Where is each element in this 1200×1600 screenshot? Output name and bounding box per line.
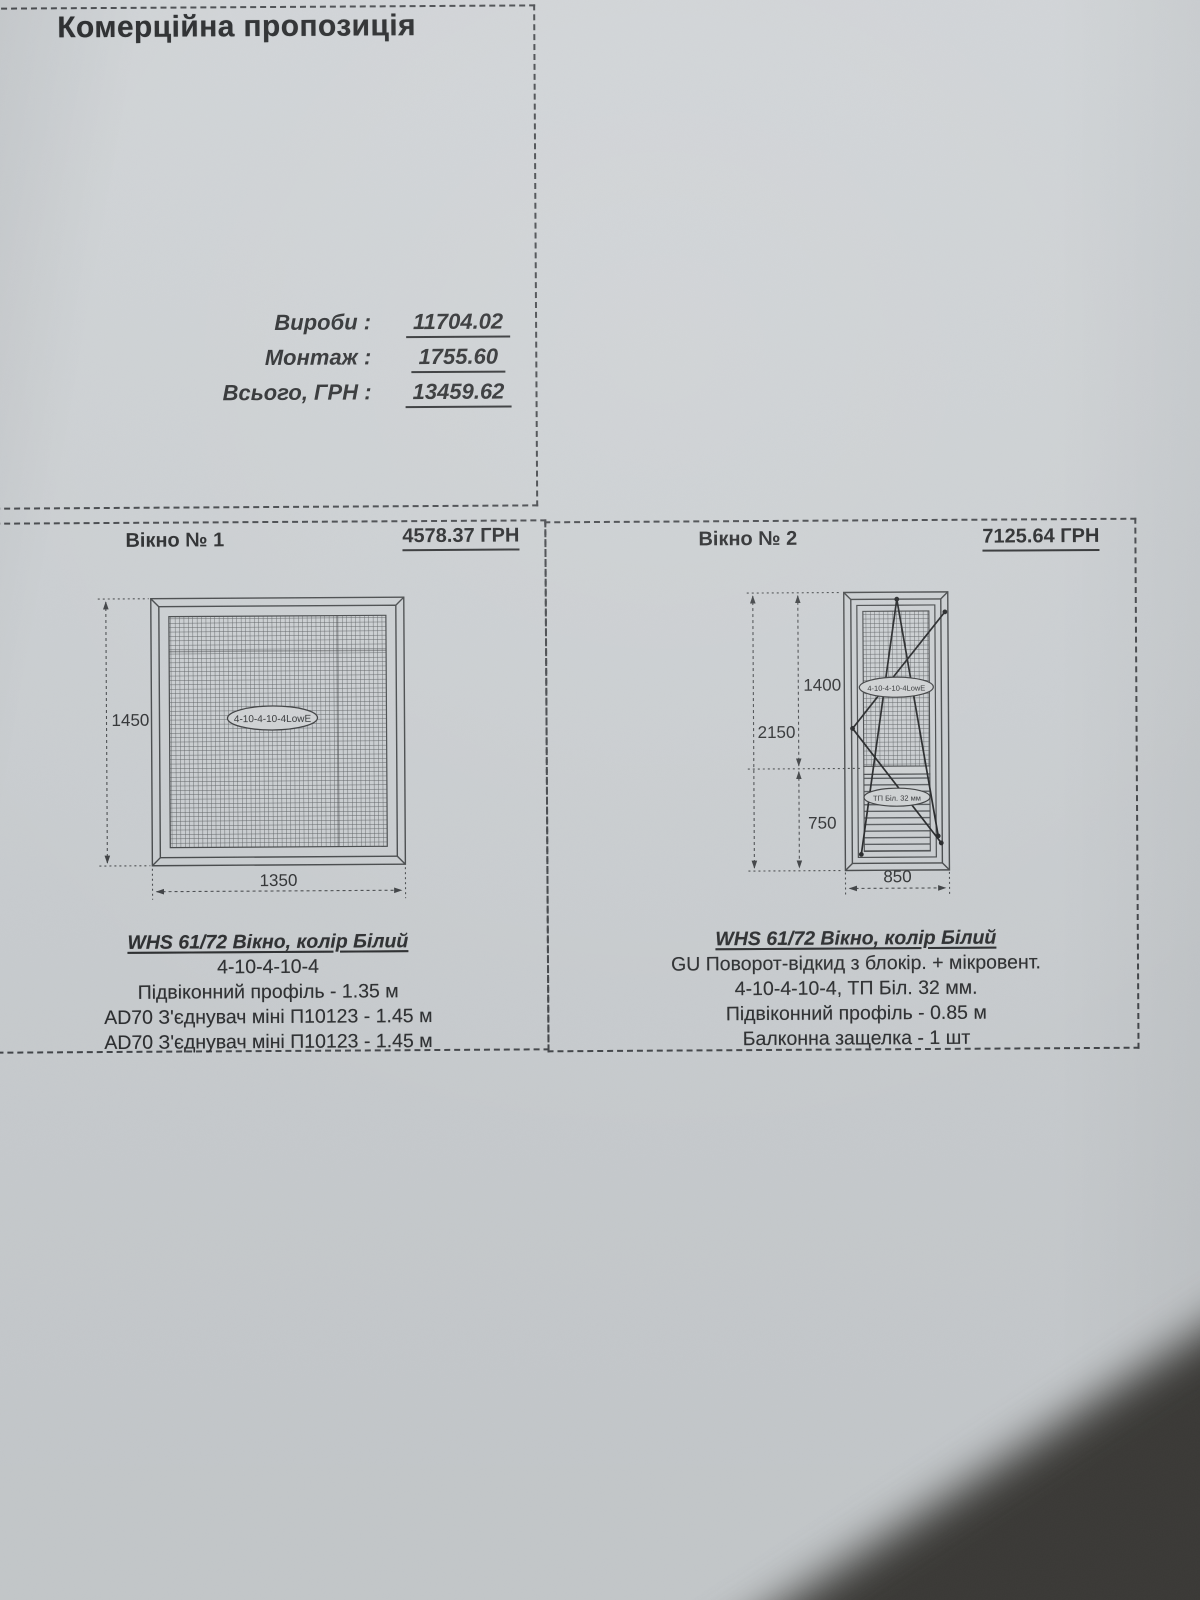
profile-spec-line: WHS 61/72 Вікно, колір Білий xyxy=(616,925,1096,953)
spec-line: 4-10-4-10-4 xyxy=(23,954,513,982)
spec-line: 4-10-4-10-4, ТП Біл. 32 мм. xyxy=(616,975,1096,1003)
photographed-document: Комерційна пропозиція Вироби : 11704.02 … xyxy=(0,0,1200,1600)
profile-spec-line: WHS 61/72 Вікно, колір Білий xyxy=(23,929,513,957)
paper-sheet: Комерційна пропозиція Вироби : 11704.02 … xyxy=(0,0,1200,1600)
spec-line: AD70 З'єднувач міні П10123 - 1.45 м xyxy=(23,1029,513,1057)
dimension-label-width: 1350 xyxy=(260,871,298,890)
window-2-panel-label: ТП Біл. 32 мм xyxy=(873,794,921,803)
window-1-glass-label: 4-10-4-10-4LowE xyxy=(234,714,312,725)
window-diagrams: 4-10-4-10-4LowE 1450 1350 xyxy=(0,0,1200,1600)
dimension-label-total-height: 2150 xyxy=(758,723,796,742)
spec-line: GU Поворот-відкид з блокір. + мікровент. xyxy=(616,950,1096,978)
window-1-description: WHS 61/72 Вікно, колір Білий 4-10-4-10-4… xyxy=(23,929,514,1057)
spec-line: Підвіконний профіль - 1.35 м xyxy=(23,979,513,1007)
window-2-drawing: 4-10-4-10-4LowE ТП Біл. 32 мм xyxy=(844,592,950,871)
dimension-label-height: 1450 xyxy=(111,711,149,730)
dimension-label-panel-height: 750 xyxy=(808,814,836,833)
spec-line: Підвіконний профіль - 0.85 м xyxy=(616,1000,1096,1028)
spec-line: AD70 З'єднувач міні П10123 - 1.45 м xyxy=(23,1004,513,1032)
window-2-glass-label: 4-10-4-10-4LowE xyxy=(867,684,925,693)
dimension-label-glass-height: 1400 xyxy=(803,676,841,695)
dimension-label-width: 850 xyxy=(883,867,911,886)
window-2-description: WHS 61/72 Вікно, колір Білий GU Поворот-… xyxy=(616,925,1097,1053)
window-1-drawing: 4-10-4-10-4LowE xyxy=(151,597,406,866)
spec-line: Балконна защелка - 1 шт xyxy=(616,1025,1096,1053)
